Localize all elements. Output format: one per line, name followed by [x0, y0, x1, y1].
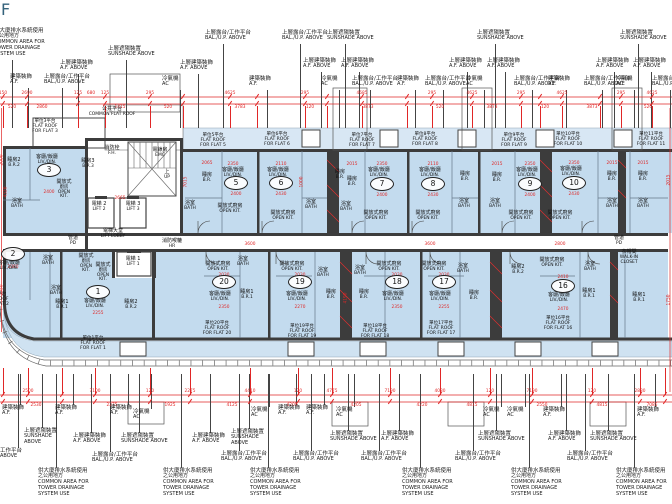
leader-line [399, 374, 400, 431]
chain-dimension: 3783 [235, 105, 246, 110]
dimension-value: 4190 [344, 293, 349, 304]
chain-dimension: 1925 [165, 403, 176, 408]
unit-number-circle: 9 [518, 177, 542, 191]
flat-roof-label: 單位10平台FLAT ROOFFOR FLAT 10 [554, 132, 583, 147]
room-label: 睡房B.R. [359, 290, 369, 301]
annotation-label: 建築裝飾A.F. [543, 407, 565, 419]
annotation-label: 建築裝飾A.F. [10, 74, 32, 86]
dimension-value: 2665 [115, 196, 126, 201]
room-label: 睡房3B.R.3 [81, 159, 94, 170]
leader-line [634, 90, 635, 128]
room-label: 睡房B.R. [326, 290, 336, 301]
annotation-label: 上層遮陽裝置SUNSHADE ABOVE [327, 30, 374, 42]
annotation-label: 上層露台/工作平台BAL./U.P. ABOVE [282, 30, 328, 42]
witness-line [150, 106, 151, 128]
annotation-label: 供大廈排水系統使用之公用地方COMMON AREA FORTOWER DRAIN… [402, 468, 453, 498]
room-label: 睡房2B.R.2 [7, 158, 20, 169]
room-label: 睡房2B.R.2 [124, 300, 137, 311]
dimension-value: 7015 [184, 177, 189, 188]
witness-line [472, 106, 473, 128]
leader-line [602, 90, 603, 128]
witness-line [600, 106, 601, 128]
annotation-label: 冷氣機AC [251, 407, 268, 419]
flat-roof-label: 單位9平台FLAT ROOFFOR FLAT 9 [501, 133, 527, 148]
room-label: 電梯 1LIFT 1 [126, 257, 141, 268]
chain-dimension: 3873 [587, 105, 598, 110]
annotation-label: 上層建築裝飾A.F. ABOVE [487, 58, 520, 70]
room-label: 浴室BATH [237, 257, 249, 268]
annotation-label: 冷氣機AC [162, 76, 179, 88]
leader-line [608, 374, 609, 431]
unit-number-circle: 18 [385, 275, 409, 289]
room-label: 浴室BATH [584, 262, 596, 273]
annotation-label: 建築裝飾A.F. [110, 405, 132, 417]
room-label: 開放式廚房OPEN KIT. [205, 262, 230, 273]
leader-line [473, 374, 474, 451]
room-label: 客廳/飯廳LIV./DIN. [84, 299, 106, 310]
dimension-value: 2065 [202, 161, 213, 166]
room-label: 開放式廚房OPENKIT. [95, 263, 110, 283]
leader-line [267, 90, 268, 128]
room-label: 開放式廚房OPENKIT. [56, 180, 71, 200]
annotation-label: 上層建築裝飾A.F. ABOVE [192, 433, 225, 445]
annotation-label: 上層建築裝飾A.F. ABOVE [180, 60, 213, 72]
room-label: 客廳/飯廳LIV./DIN. [209, 292, 231, 303]
room-label: 開放式廚房OPEN KIT. [279, 262, 304, 273]
room-label: 浴室BATH [317, 268, 329, 279]
witness-line [521, 106, 522, 128]
witness-line [652, 106, 653, 128]
dimension-value: 3600 [425, 242, 436, 247]
unit-number-circle: 17 [432, 275, 456, 289]
unit-number-circle: 8 [421, 177, 445, 191]
leader-line [42, 374, 43, 428]
annotation-label: 上層遮陽裝置SUNSHADEABOVE [231, 429, 264, 447]
room-label: 衣帽間WALK-INCLOSET [620, 250, 638, 265]
annotation-label: 冷氣機AC [616, 76, 633, 88]
annotation-label: 上層遮陽裝置SUNSHADE ABOVE [477, 30, 524, 42]
chain-dimension: 4220 [417, 403, 428, 408]
dimension-value: 2350 [392, 305, 403, 310]
dimension-value: 2400 [377, 193, 388, 198]
room-label: 開放式廚房OPEN KIT. [270, 211, 295, 222]
annotation-label: 上層建築裝飾A.F. ABOVE [303, 58, 336, 70]
chain-dimension: 520 [8, 105, 16, 110]
unit-number-circle: 16 [551, 279, 575, 293]
annotation-label: 建築裝飾A.F. [637, 407, 659, 419]
room-label: 浴室BATH [305, 200, 317, 211]
unit-number-circle: 3 [37, 163, 61, 177]
annotation-label: 供大廈排水系統使用之公用地方COMMON AREA FORTOWER DRAIN… [163, 468, 214, 498]
leader-line [348, 374, 349, 431]
witness-line [27, 106, 28, 128]
room-label: 睡房2B.R.2 [511, 265, 524, 276]
room-label: 管道PD [68, 236, 78, 247]
leader-line [268, 374, 269, 468]
room-label: 睡房B.R. [607, 172, 617, 183]
annotation-label: 上層遮陽裝置SUNSHADEABOVE [24, 428, 57, 446]
leader-line [670, 90, 671, 128]
room-label: 浴室BATH [606, 199, 618, 210]
leader-line [638, 44, 639, 128]
room-label: 睡房1B.R.1 [582, 289, 595, 300]
annotation-label: 上層建築裝飾A.F. ABOVE [381, 431, 414, 443]
annotation-label: 建築裝飾A.F. [548, 76, 570, 88]
dimension-value: 2000 [0, 155, 5, 166]
room-label: 電梯 3LIFT 3 [126, 202, 141, 213]
flat-roof-label: 單位19平台FLAT ROOFFOR FLAT 19 [288, 324, 317, 339]
room-label: 開放式廚房OPENKIT. [78, 254, 93, 274]
dimension-value: 2015 [492, 162, 503, 167]
witness-line [327, 106, 328, 128]
annotation-label: 冷氣機AC [321, 76, 338, 88]
room-label: 開放式廚房OPEN KIT. [508, 211, 533, 222]
room-label: 浴室BATH [458, 199, 470, 210]
room-label: 開放式廚房OPEN KIT. [217, 204, 242, 215]
witness-line [621, 106, 622, 128]
annotation-label: 供大廈排水系統使用之公用地方COMMON AREA FORTOWER DRAIN… [38, 468, 89, 498]
dimension-value: 1750 [667, 295, 672, 306]
dimension-value: 2430 [569, 192, 580, 197]
room-label: 睡房B.R. [347, 177, 357, 188]
chain-dimension: 120 [541, 105, 549, 110]
annotation-label: 上層建築裝飾A.F. ABOVE [341, 58, 374, 70]
chain-dimension: 3873 [487, 105, 498, 110]
room-label: 浴室BATH [354, 266, 366, 277]
leader-line [420, 374, 421, 468]
leader-line [210, 374, 211, 433]
leader-line [495, 44, 496, 128]
annotation-label: 建築裝飾A.F. [249, 76, 271, 88]
room-label: 開放式廚房OPEN KIT. [415, 211, 440, 222]
dimension-value: 2255 [93, 311, 104, 316]
dimension-value: 2015 [638, 161, 649, 166]
annotation-label: 上層露台/工作平台BAL./U.P. ABOVE [221, 451, 267, 463]
leader-line [532, 90, 533, 128]
annotation-label: 冷氣機AC [133, 409, 150, 421]
room-label: 開放式廚房OPEN KIT. [376, 262, 401, 273]
dimension-value: 1000 [300, 177, 305, 188]
witness-line [230, 106, 231, 128]
witness-line [257, 106, 258, 128]
chain-dimension: 4815 [467, 403, 478, 408]
annotation-label: 上層露台/工作平台BAL./U.P. ABOVE [92, 452, 138, 464]
annotation-label: 上層建築裝飾A.F. ABOVE [596, 58, 629, 70]
room-label: 睡房B.R. [460, 172, 470, 183]
annotation-label: 上層建築裝飾A.F. ABOVE [633, 58, 666, 70]
leader-line [139, 374, 140, 433]
dimension-value: 2430 [276, 192, 287, 197]
annotation-label: 供大廈排水系統使用之公用地方COMMON AREA FORTOWER DRAIN… [616, 468, 667, 498]
room-label: 消防栓F.H. [104, 146, 119, 157]
annotation-label: 上層露台/工作平台BAL./U.P. ABOVE [567, 451, 613, 463]
floor-plan-page: F 供大廈排水系統使用之公用地方COMMON AREA FORTOWER DRA… [0, 0, 672, 504]
room-label: 浴室BATH [489, 199, 501, 210]
unit-number-circle: 1 [86, 285, 110, 299]
annotation-label: 建築裝飾A.F. [306, 405, 328, 417]
flat-roof-label: 單位5平台FLAT ROOFFOR FLAT 5 [200, 133, 226, 148]
leader-line [496, 374, 497, 431]
room-label: 浴室BATH [184, 201, 196, 212]
unit-number-circle: 7 [370, 177, 394, 191]
annotation-label: 冷氣機AC [507, 407, 524, 419]
annotation-label: 上層露台/工作平台BAL./U.P. ABOVE [652, 76, 672, 88]
room-label: 睡房1B.R.1 [632, 293, 645, 304]
flat-roof-label: 單位18平台FLAT ROOFFOR FLAT 18 [361, 324, 390, 339]
leader-line [415, 90, 416, 128]
dimension-value: 2015 [667, 175, 672, 186]
leader-line [126, 60, 127, 128]
room-label: 客廳/飯廳LIV./DIN. [429, 292, 451, 303]
annotation-label: 上層建築裝飾A.F. ABOVE [548, 431, 581, 443]
room-label: 浴室BATH [50, 286, 62, 297]
dimension-value: 2400 [525, 193, 536, 198]
dimension-value: 2015 [347, 162, 358, 167]
dimension-value: 4320 [4, 187, 9, 198]
leader-line [339, 90, 340, 128]
leader-line [62, 88, 63, 128]
leader-line [56, 374, 57, 468]
flat-roof-label: 單位20平台FLAT ROOFFOR FLAT 20 [203, 321, 232, 336]
flat-roof-label: 單位17平台FLAT ROOFFOR FLAT 17 [427, 321, 456, 336]
dimension-value: 2350 [219, 305, 230, 310]
leader-line [300, 44, 301, 128]
witness-line [3, 106, 4, 128]
flat-roof-label: 單位1平台FLAT ROOFFOR FLAT 1 [80, 336, 106, 351]
leader-line [484, 90, 485, 128]
room-label: 開放式廚房OPEN KIT. [539, 258, 564, 269]
annotation-label: 上層建築裝飾A.F. ABOVE [73, 433, 106, 445]
annotation-label: 供大廈排水系統使用之公用地方COMMON AREA FORTOWER DRAIN… [250, 468, 301, 498]
flat-roof-label: 單位8平台FLAT ROOFFOR FLAT 8 [412, 132, 438, 147]
leader-line [324, 374, 325, 405]
room-label: 開放式廚房OPEN KIT. [547, 211, 572, 222]
dimension-value: 2800 [555, 242, 566, 247]
room-label: 睡房B.R. [469, 291, 479, 302]
room-label: 公共平台COMMON FLAT ROOF [89, 107, 136, 118]
annotation-label: 上層露台/工作平台BAL./U.P. ABOVE [425, 76, 471, 88]
chain-dimension: 2860 [37, 105, 48, 110]
witness-line [562, 106, 563, 128]
annotation-label: 上層露台/工作平台BAL./U.P. ABOVE [293, 451, 339, 463]
room-label: 浴室BATH [42, 256, 54, 267]
annotation-label: 工作平台ABOVE [0, 448, 22, 460]
room-label: 客廳/飯廳LIV./DIN. [286, 292, 308, 303]
leader-line [379, 374, 380, 451]
annotation-label: 上層遮陽裝置SUNSHADE ABOVE [108, 46, 155, 58]
flat-roof-label: 單位2平台FLAT ROOFFOR FLAT 2 [0, 292, 9, 307]
room-label: 電梯大堂LIFT LOBBY [101, 229, 125, 240]
annotation-label: 建築裝飾A.F. [278, 405, 300, 417]
room-label: 開放式廚房OPEN KIT. [363, 211, 388, 222]
annotation-label: 建築裝飾A.F. [55, 405, 77, 417]
unit-number-circle: 6 [269, 176, 293, 190]
chain-dimension: 680 [87, 91, 95, 96]
room-label: 浴室BATH [340, 202, 352, 213]
room-label: 浴室BATH [457, 264, 469, 275]
annotation-label: 供大廈排水系統使用之公用地方COMMON AREA FORTOWER DRAIN… [0, 28, 45, 58]
annotation-label: 上層露台/工作平台BAL./U.P. ABOVE [44, 74, 90, 86]
leader-line [128, 374, 129, 405]
leader-line [501, 374, 502, 407]
annotation-label: 上層露台/工作平台BAL./U.P. ABOVE [352, 76, 398, 88]
dimension-value: 2430 [428, 193, 439, 198]
annotation-label: 建築裝飾A.F. [397, 76, 419, 88]
flat-roof-label: 單位16平台FLAT ROOFFOR FLAT 16 [544, 316, 573, 331]
witness-line [432, 106, 433, 128]
room-label: 睡房B.R. [202, 173, 212, 184]
dimension-value: 2015 [607, 161, 618, 166]
annotation-label: 上層遮陽裝置SUNSHADE ABOVE [620, 30, 667, 42]
room-label: 上UP [164, 170, 170, 181]
annotation-label: 上層露台/工作平台BAL./U.P. ABOVE [205, 30, 251, 42]
annotation-label: 上層遮陽裝置SUNSHADE ABOVE [330, 431, 377, 443]
witness-line [407, 106, 408, 128]
room-label: 客廳/飯廳LIV./DIN. [382, 292, 404, 303]
flat-roof-label: 單位7平台FLAT ROOFFOR FLAT 7 [349, 133, 375, 148]
room-label: 浴室BATH [11, 199, 23, 210]
annotation-label: 冷氣機AC [483, 407, 500, 419]
leader-line [505, 72, 506, 128]
room-label: 消防喉轆HR [162, 239, 182, 250]
room-label: 客廳/飯廳LIV./DIN. [548, 293, 570, 304]
dimension-value: 2400 [44, 190, 55, 195]
annotation-label: 上層遮陽裝置SUNSHADE ABOVE [590, 431, 637, 443]
room-label: 睡房1B.R.1 [240, 290, 253, 301]
annotation-label: 冷氣機AC [466, 76, 483, 88]
leader-line [223, 44, 224, 128]
room-label: 浴室BATH [637, 199, 649, 210]
leader-line [345, 44, 346, 128]
annotation-label: 供大廈排水系統使用之公用地方COMMON AREA FORTOWER DRAIN… [511, 468, 562, 498]
dimension-value: 2255 [439, 305, 450, 310]
room-label: 電梯 2LIFT 2 [92, 202, 107, 213]
annotation-label: 建築裝飾A.F. [2, 405, 24, 417]
leader-line [180, 90, 181, 128]
annotation-label: 冷氣機AC [336, 407, 353, 419]
room-label: 睡房1B.R.1 [55, 300, 68, 311]
unit-number-circle: 10 [562, 176, 586, 190]
witness-line [78, 106, 79, 128]
leader-line [12, 60, 13, 128]
chain-dimension: 120 [306, 105, 314, 110]
leader-line [198, 74, 199, 128]
flat-roof-label: 單位6平台FLAT ROOFFOR FLAT 6 [264, 132, 290, 147]
page-title: F [1, 0, 10, 19]
unit-number-circle: 5 [224, 176, 248, 190]
room-label: 電錶房EMC [152, 148, 167, 159]
chain-dimension: 520 [164, 105, 172, 110]
chain-dimension: 3873 [363, 105, 374, 110]
annotation-label: 上層建築裝飾A.F. ABOVE [449, 58, 482, 70]
leader-line [20, 374, 21, 405]
unit-number-circle: 19 [288, 275, 312, 289]
annotation-label: 上層遮陽裝置SUNSHADE ABOVE [478, 431, 525, 443]
room-label: 客廳/飯廳LIV./DIN. [0, 261, 20, 272]
dimension-value: 2400 [231, 192, 242, 197]
leader-line [561, 374, 562, 407]
annotation-label: 上層遮陽裝置SUNSHADE ABOVE [121, 433, 168, 445]
leader-line [73, 374, 74, 405]
unit-number-circle: 2 [1, 247, 25, 261]
dimension-value: 2270 [295, 305, 306, 310]
room-label: 睡房B.R. [492, 173, 502, 184]
room-label: 睡房B.R. [638, 172, 648, 183]
room-label: 管道PD [614, 236, 624, 247]
leader-line [269, 374, 270, 407]
chain-dimension: 2530 [31, 403, 42, 408]
annotation-label: 上層露台/工作平台BAL./U.P. ABOVE [455, 451, 501, 463]
dimension-value: 3600 [245, 242, 256, 247]
leader-line [585, 374, 586, 451]
room-label: 開放式廚房OPEN KIT. [421, 262, 446, 273]
flat-roof-label: 單位11平台FLAT ROOFFOR FLAT 11 [637, 132, 666, 147]
annotation-label: 上層建築裝飾A.F. ABOVE [60, 60, 93, 72]
room-label: 睡房B.R. [335, 170, 345, 181]
chain-dimension: 4815 [597, 403, 608, 408]
chain-dimension: 4125 [227, 403, 238, 408]
annotation-label: 上層露台/工作平台BAL./U.P. ABOVE [361, 451, 407, 463]
unit-number-circle: 20 [212, 275, 236, 289]
witness-line [183, 106, 184, 128]
leader-line [566, 374, 567, 431]
flat-roof-label: 單位3平台FLAT ROOFFOR FLAT 3 [32, 119, 58, 134]
dimension-value: 2470 [558, 307, 569, 312]
leader-line [181, 374, 182, 468]
chain-dimension: 520 [436, 105, 444, 110]
